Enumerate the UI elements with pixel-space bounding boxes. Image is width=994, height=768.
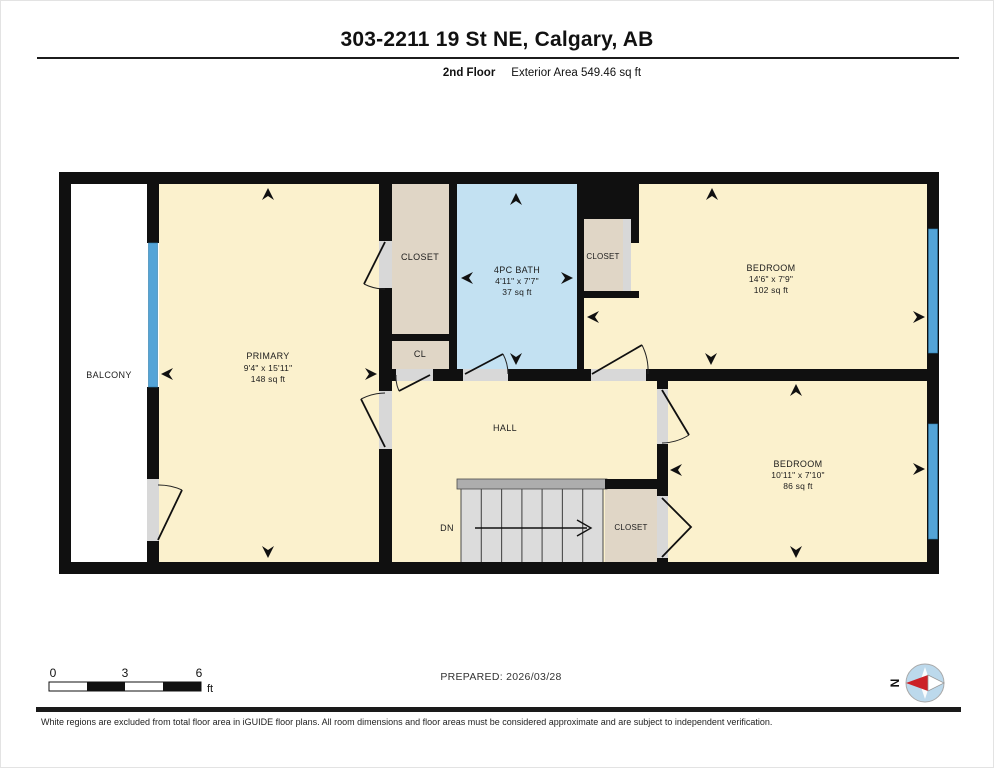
staircase bbox=[457, 479, 607, 564]
room-area-bedroom-top: 102 sq ft bbox=[754, 285, 789, 295]
floor-plan-canvas: BALCONY PRIMARY 9'4" x 15'11" 148 sq ft … bbox=[1, 1, 994, 768]
scale-unit-label: ft bbox=[207, 683, 213, 695]
footer-divider bbox=[36, 707, 961, 712]
bedroom-bottom-window bbox=[929, 424, 938, 539]
scale-tick-6: 6 bbox=[196, 666, 203, 680]
room-label-balcony: BALCONY bbox=[86, 370, 131, 380]
balcony-window bbox=[149, 243, 158, 387]
room-area-bath: 37 sq ft bbox=[502, 287, 532, 297]
room-label-bath: 4PC BATH bbox=[494, 265, 540, 275]
stairs-dn-label: DN bbox=[440, 523, 454, 533]
bedroom-top-window bbox=[929, 229, 938, 353]
scale-bar: 0 3 6 ft bbox=[49, 666, 213, 695]
room-label-primary: PRIMARY bbox=[246, 351, 289, 361]
room-label-closet-hall: CLOSET bbox=[614, 523, 647, 532]
scale-tick-0: 0 bbox=[50, 666, 57, 680]
compass: N bbox=[888, 664, 944, 702]
room-area-primary: 148 sq ft bbox=[251, 374, 286, 384]
room-label-cl: CL bbox=[414, 349, 426, 359]
floor-plan-page: 303-2211 19 St NE, Calgary, AB 2nd Floor… bbox=[0, 0, 994, 768]
room-dims-bath: 4'11" x 7'7" bbox=[495, 276, 539, 286]
room-label-closet-top: CLOSET bbox=[401, 252, 439, 262]
room-dims-primary: 9'4" x 15'11" bbox=[244, 363, 293, 373]
primary-area bbox=[159, 184, 379, 562]
room-dims-bedroom-bottom: 10'11" x 7'10" bbox=[771, 470, 825, 480]
closet-bedroom-opening bbox=[623, 219, 631, 291]
scale-tick-3: 3 bbox=[122, 666, 129, 680]
stair-rail bbox=[457, 479, 607, 489]
room-label-hall: HALL bbox=[493, 423, 517, 433]
footer-disclaimer: White regions are excluded from total fl… bbox=[41, 717, 772, 727]
prepared-date-label: PREPARED: 2026/03/28 bbox=[440, 671, 561, 683]
room-label-bedroom-top: BEDROOM bbox=[747, 263, 796, 273]
scale-bar-segment bbox=[163, 682, 201, 691]
room-area-bedroom-bottom: 86 sq ft bbox=[783, 481, 813, 491]
room-label-closet-bedroom: CLOSET bbox=[586, 252, 619, 261]
scale-bar-segment bbox=[87, 682, 125, 691]
footer: White regions are excluded from total fl… bbox=[36, 707, 961, 727]
room-label-bedroom-bottom: BEDROOM bbox=[774, 459, 823, 469]
room-dims-bedroom-top: 14'6" x 7'9" bbox=[749, 274, 793, 284]
compass-north-label: N bbox=[888, 679, 902, 688]
